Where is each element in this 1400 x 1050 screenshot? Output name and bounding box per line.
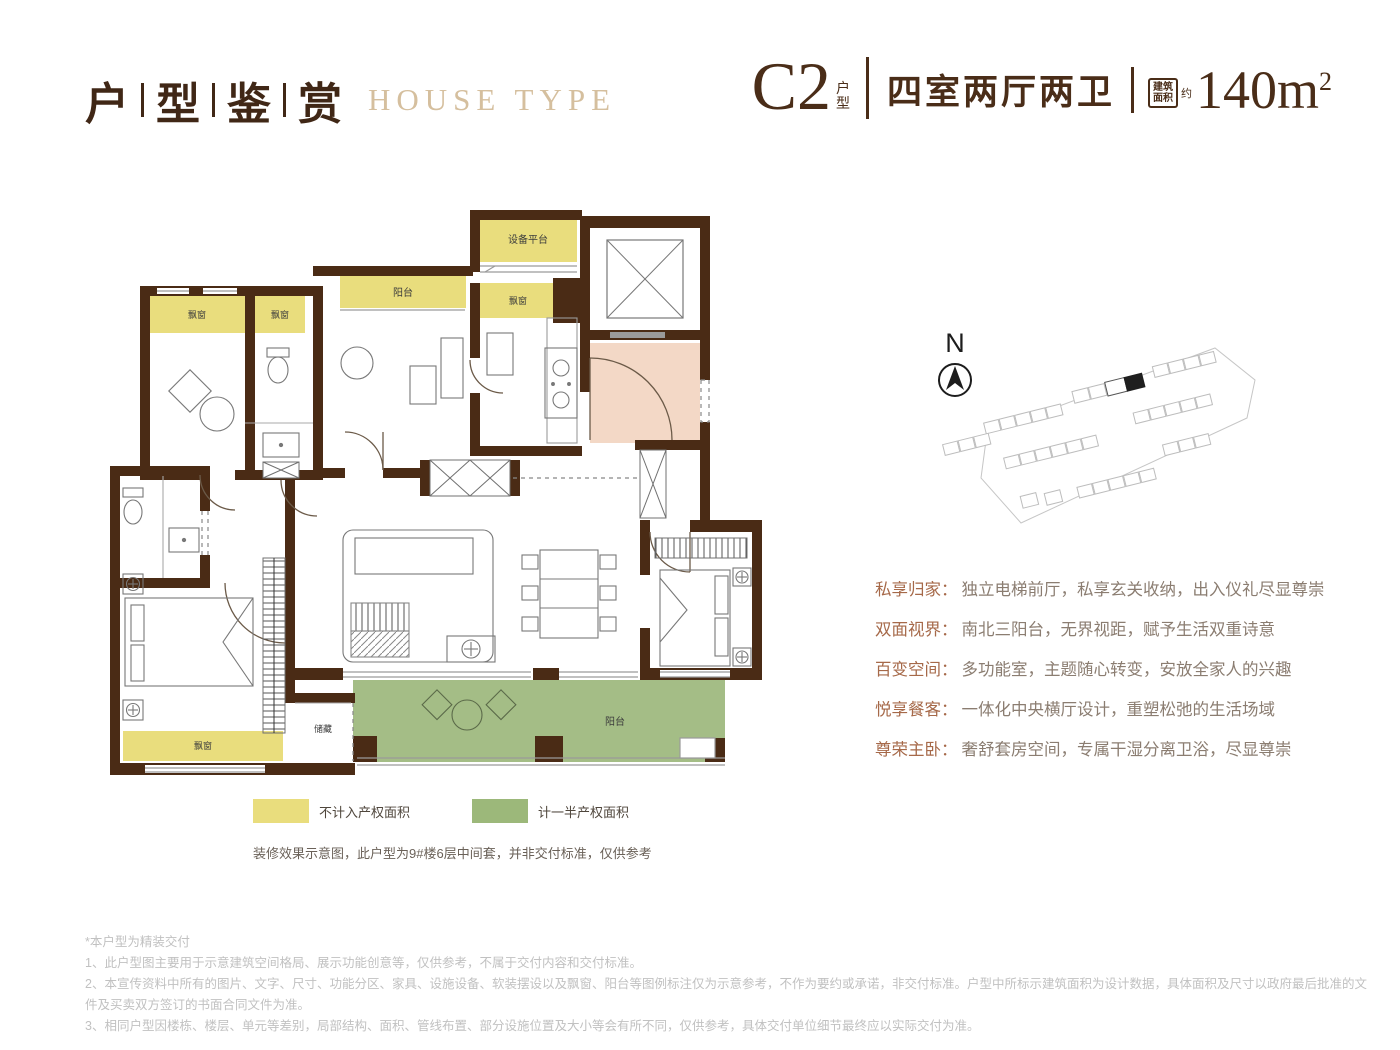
feature-title: 悦享餐客：: [875, 701, 958, 719]
title-char: 型: [156, 68, 200, 132]
legend-swatch-green: [472, 799, 528, 823]
area-label-box: 建筑 面积: [1148, 78, 1178, 108]
page-title-cn: 户 型 鉴 赏: [85, 68, 342, 132]
unit-code-suffix: 户型: [836, 81, 852, 111]
title-divider: [283, 83, 286, 117]
legend-label: 不计入产权面积: [319, 802, 410, 821]
label-equipment-platform: 设备平台: [508, 233, 548, 246]
feature-desc: 奢舒套房空间，专属干湿分离卫浴，尽显尊崇: [962, 741, 1292, 759]
title-char: 户: [85, 68, 129, 132]
legend-item: 不计入产权面积: [253, 799, 410, 823]
plan-note: 装修效果示意图，此户型为9#楼6层中间套，并非交付标准，仅供参考: [253, 843, 652, 862]
highlighted-building: [1124, 373, 1145, 391]
elevator-shaft: [590, 228, 700, 330]
legend-label: 计一半产权面积: [538, 802, 629, 821]
floorplan: 设备平台 阳台 飘窗 飘窗 飘窗 飘窗 储藏 阳台: [95, 198, 775, 798]
title-char: 鉴: [227, 68, 271, 132]
label-bay-master: 飘窗: [194, 740, 212, 751]
compass-needle-icon: [946, 366, 964, 390]
disclaimer: *本户型为精装交付 1、此户型图主要用于示意建筑空间格局、展示功能创意等，仅供参…: [85, 932, 1377, 1037]
feature-title: 尊荣主卧：: [875, 741, 958, 759]
legend-swatch-yellow: [253, 799, 309, 823]
label-balcony-north: 阳台: [393, 286, 413, 299]
label-bay-a: 飘窗: [188, 309, 206, 320]
label-storage: 储藏: [314, 723, 332, 734]
unit-layout: 四室两厅两卫: [887, 64, 1115, 115]
flyer-canvas: 户 型 鉴 赏 HOUSE TYPE C2 户型 四室两厅两卫 建筑 面积 约 …: [0, 0, 1400, 1050]
page-title-en: HOUSE TYPE: [368, 82, 616, 118]
feature-row: 私享归家：独立电梯前厅，私享玄关收纳，出入仪礼尽显尊崇: [875, 578, 1345, 603]
disclaimer-line: *本户型为精装交付: [85, 932, 1377, 953]
label-bay-b: 飘窗: [271, 309, 289, 320]
title-divider: [212, 83, 215, 117]
header-divider: [1131, 67, 1134, 113]
label-bay-kitchen: 飘窗: [509, 295, 527, 306]
unit-code: C2: [752, 52, 831, 120]
feature-row: 尊荣主卧：奢舒套房空间，专属干湿分离卫浴，尽显尊崇: [875, 738, 1345, 763]
feature-row: 悦享餐客：一体化中央横厅设计，重塑松弛的生活场域: [875, 698, 1345, 723]
legend-item: 计一半产权面积: [472, 799, 629, 823]
title-divider: [141, 83, 144, 117]
disclaimer-line: 1、此户型图主要用于示意建筑空间格局、展示功能创意等，仅供参考，不属于交付内容和…: [85, 953, 1377, 974]
feature-title: 私享归家：: [875, 581, 958, 599]
feature-row: 百变空间：多功能室，主题随心转变，安放全家人的兴趣: [875, 658, 1345, 683]
area-exponent: 2: [1319, 67, 1332, 96]
feature-desc: 一体化中央横厅设计，重塑松弛的生活场域: [962, 701, 1276, 719]
area-approx: 约: [1181, 85, 1192, 101]
header-divider: [866, 57, 869, 119]
site-buildings: [943, 351, 1217, 511]
unit-header: C2 户型 四室两厅两卫 建筑 面积 约 140m2: [752, 52, 1332, 120]
feature-desc: 南北三阳台，无界视距，赋予生活双重诗意: [962, 621, 1276, 639]
feature-row: 双面视界：南北三阳台，无界视距，赋予生活双重诗意: [875, 618, 1345, 643]
area-value: 140m2: [1196, 55, 1332, 117]
compass: N: [939, 328, 971, 396]
disclaimer-line: 3、相同户型因楼栋、楼层、单元等差别，局部结构、面积、管线布置、部分设施位置及大…: [85, 1016, 1377, 1037]
site-plan: N: [925, 318, 1285, 533]
page-title: 户 型 鉴 赏 HOUSE TYPE: [85, 68, 616, 132]
feature-title: 双面视界：: [875, 621, 958, 639]
feature-desc: 多功能室，主题随心转变，安放全家人的兴趣: [962, 661, 1292, 679]
feature-title: 百变空间：: [875, 661, 958, 679]
compass-north-label: N: [945, 328, 965, 358]
title-char: 赏: [298, 68, 342, 132]
feature-list: 私享归家：独立电梯前厅，私享玄关收纳，出入仪礼尽显尊崇 双面视界：南北三阳台，无…: [875, 578, 1345, 778]
label-balcony-south: 阳台: [605, 715, 625, 728]
area-legend: 不计入产权面积 计一半产权面积: [253, 799, 629, 823]
disclaimer-line: 2、本宣传资料中所有的图片、文字、尺寸、功能分区、家具、设施设备、软装摆设以及飘…: [85, 974, 1377, 1016]
feature-desc: 独立电梯前厅，私享玄关收纳，出入仪礼尽显尊崇: [962, 581, 1325, 599]
